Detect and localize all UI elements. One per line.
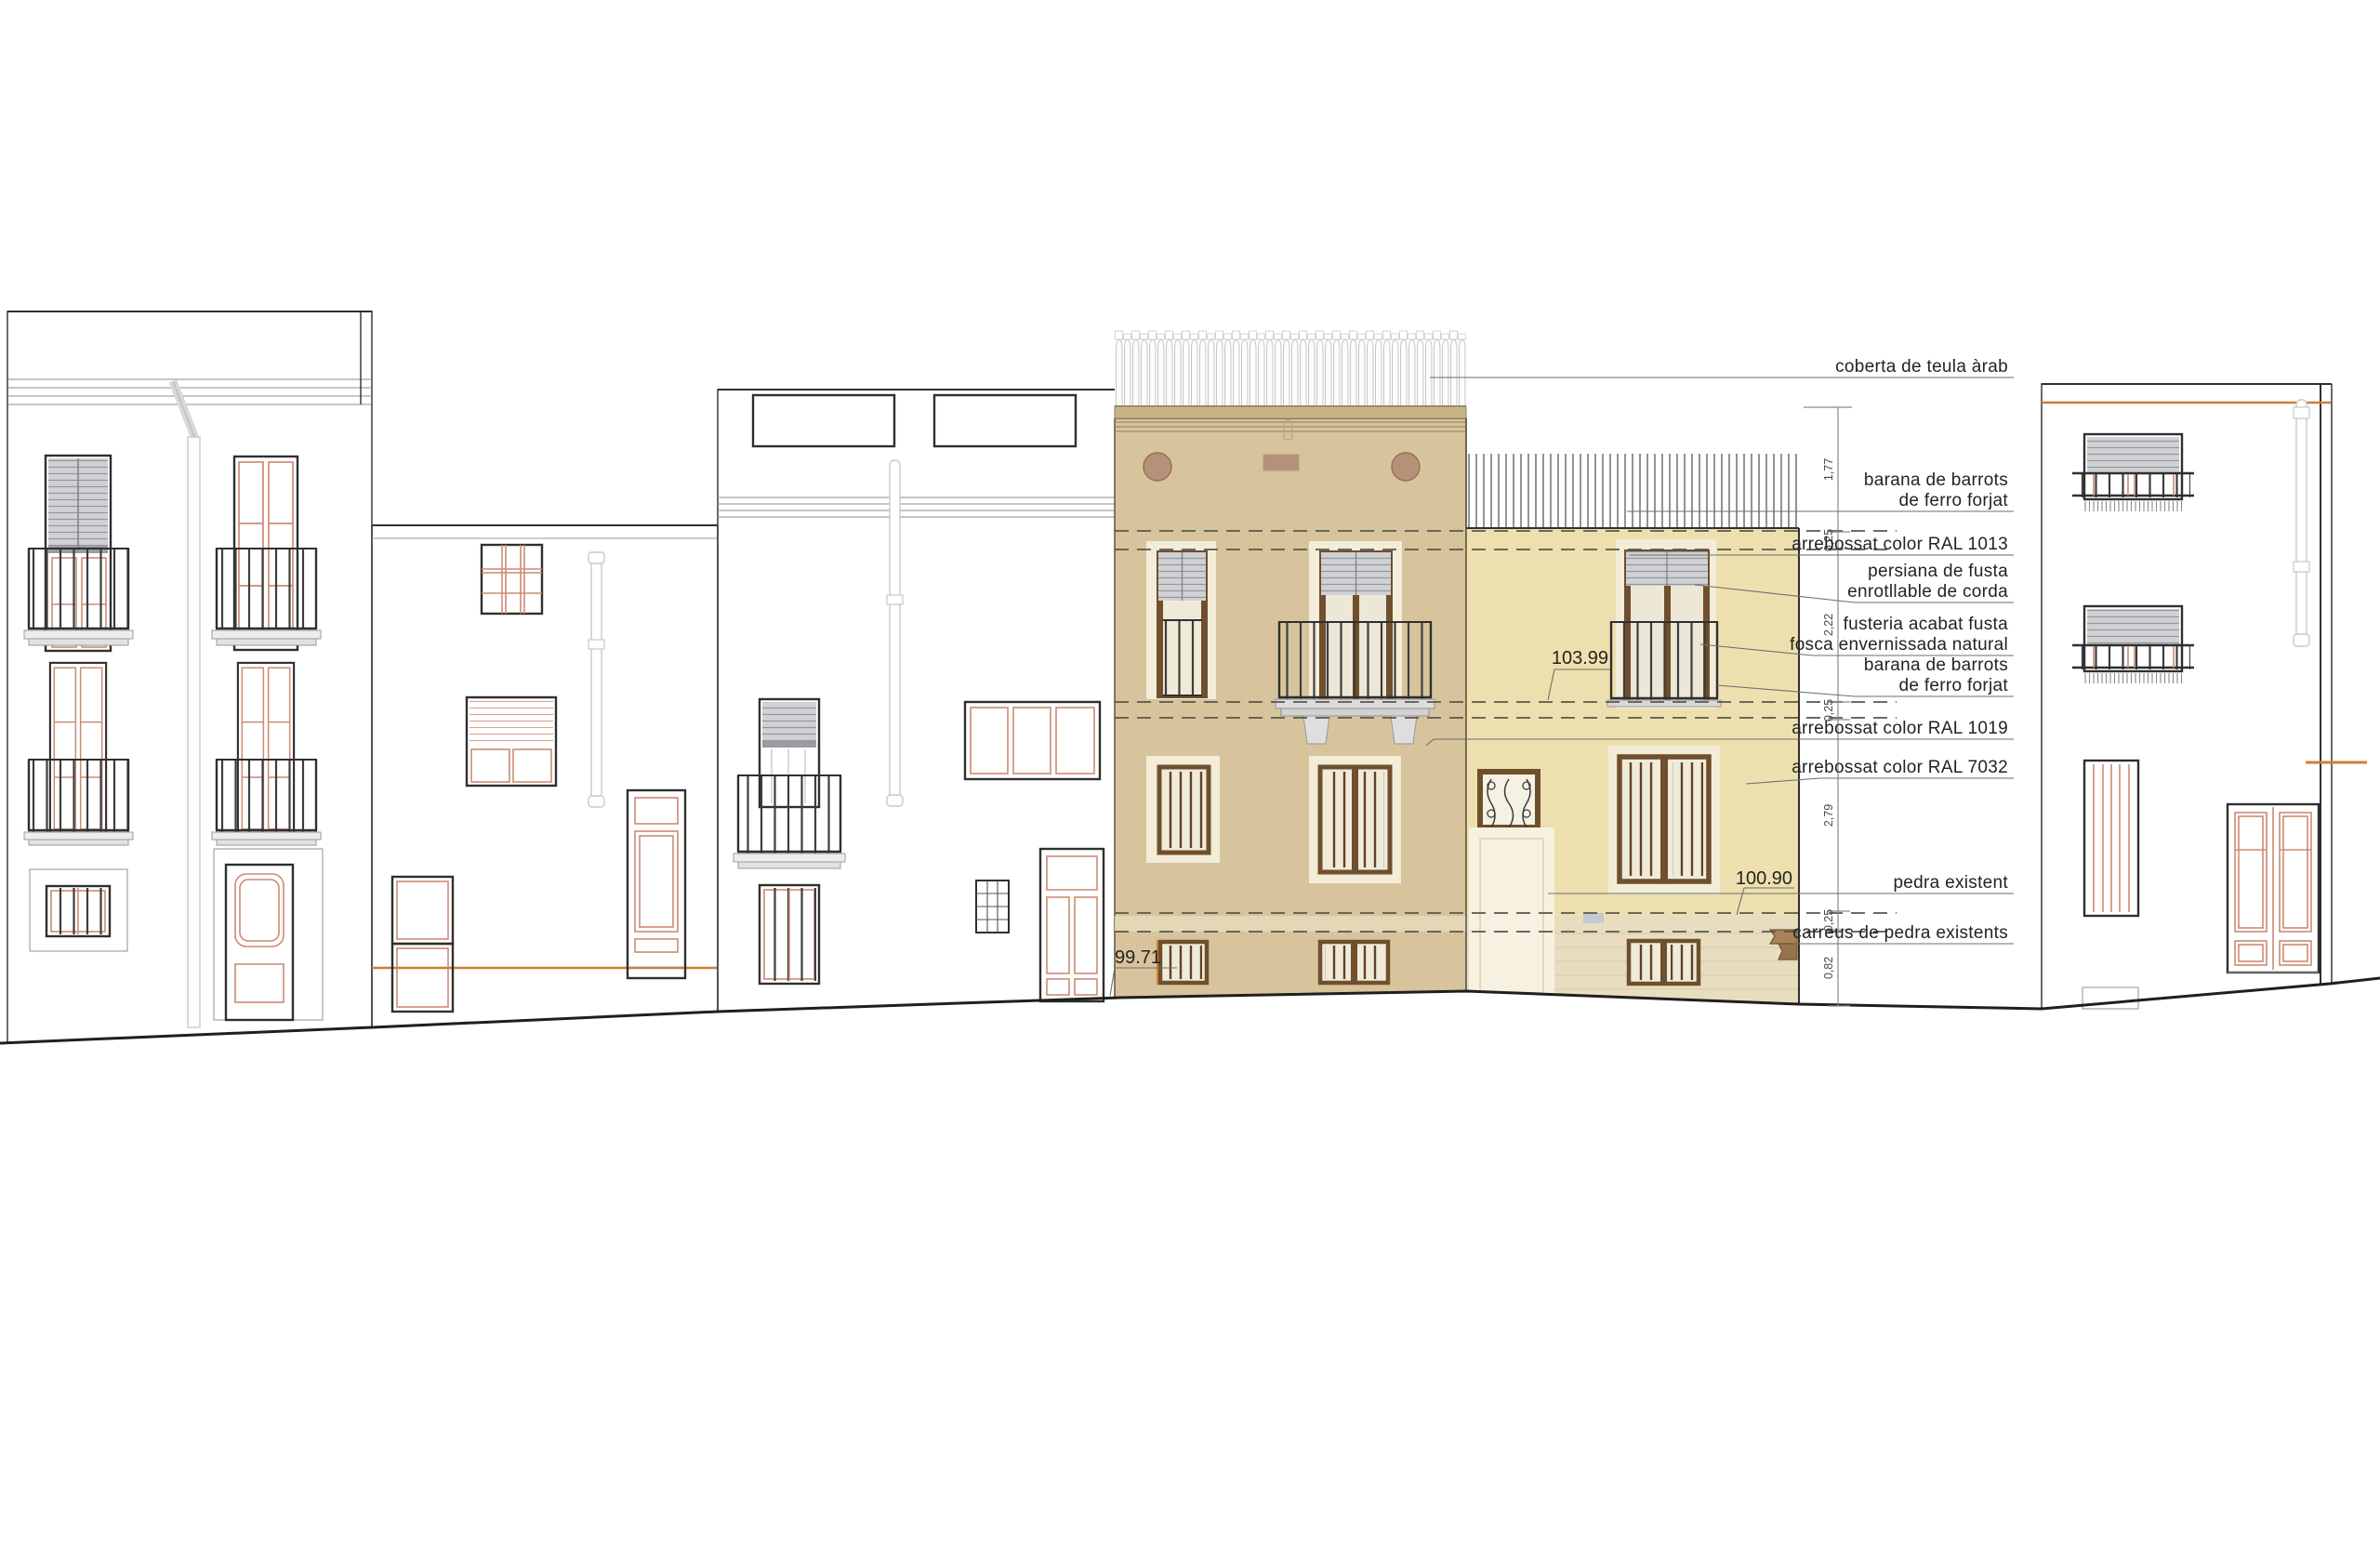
lattice-window <box>392 877 453 1012</box>
balcony-window-shutter <box>734 699 845 868</box>
balcony-railing <box>1610 622 1718 700</box>
annotation-text: carreus de pedra existents <box>1792 923 2008 943</box>
annotation-text: fosca envernissada natural <box>1790 635 2008 655</box>
grid-window <box>976 880 1009 933</box>
balcony-window-glazed <box>212 457 321 650</box>
dimension-line: 1,77 0,25 2,22 0,25 2,79 0,25 0,82 <box>1804 407 1852 1006</box>
rect-vent <box>1263 454 1300 471</box>
building-f <box>2042 384 2380 1009</box>
level-value: 100.90 <box>1736 868 1792 889</box>
annotation-text: enrotllable de corda <box>1847 582 2008 602</box>
barred-window <box>760 885 819 984</box>
balcony-window-glazed <box>212 663 321 845</box>
annotation-text: pedra existent <box>1893 873 2008 893</box>
annotation-coberta-teula: coberta de teula àrab <box>1430 357 2014 377</box>
balcony-underside-hatch <box>2084 673 2184 683</box>
annotation-text: barana de barrots <box>1864 470 2008 490</box>
balcony-slab <box>1276 699 1435 708</box>
door-surround <box>1469 827 1554 994</box>
double-door-f <box>2228 804 2319 973</box>
balcony-window-glazed <box>24 663 133 845</box>
triple-window <box>965 702 1100 779</box>
downspout-c <box>887 460 903 806</box>
dimension-value: 2,22 <box>1822 614 1835 636</box>
balcony-underside-hatch <box>2084 501 2184 511</box>
annotation-text: persiana de fusta <box>1868 562 2008 581</box>
building-a-cornice <box>7 379 372 404</box>
dimension-value: 1,77 <box>1822 458 1835 481</box>
window-d-2f-left <box>1146 541 1216 699</box>
balcony-railing <box>1278 622 1432 699</box>
window-d-gf-left <box>1157 940 1207 985</box>
street-elevation-svg: 1,77 0,25 2,22 0,25 2,79 0,25 0,82 103.9… <box>0 0 2380 1562</box>
dimension-value: 2,79 <box>1822 804 1835 827</box>
roof-terrace-railing <box>1468 454 1797 528</box>
building-c <box>718 390 1120 1012</box>
annotation-text: arrebossat color RAL 1013 <box>1792 535 2008 554</box>
annotation-text: arrebossat color RAL 1019 <box>1792 719 2008 738</box>
downspout-f <box>2294 400 2309 646</box>
balcony-railing <box>24 549 133 645</box>
building-a <box>7 311 372 1043</box>
roller-shutter <box>2087 609 2179 646</box>
window-e-balcony <box>1607 539 1721 708</box>
building-d <box>1115 330 1466 998</box>
annotation-carreus: carreus de pedra existents <box>1792 923 2014 944</box>
balcony-corbel <box>1391 716 1417 744</box>
window-d-gf-right <box>1320 940 1388 985</box>
balcony-f-lower <box>2072 606 2194 683</box>
cross-window <box>482 545 542 614</box>
annotation-text: fusteria acabat fusta <box>1844 615 2009 634</box>
level-value: 103.99 <box>1552 648 1608 668</box>
balcony-f-upper <box>2072 434 2194 511</box>
balcony-slab <box>1607 700 1721 707</box>
wrought-iron-window <box>1480 772 1538 827</box>
window-e-gf <box>1629 939 1699 986</box>
window-d-1f-right <box>1309 756 1401 883</box>
cornice-band <box>1115 406 1466 418</box>
round-vent <box>1144 453 1171 481</box>
stone-band <box>1115 916 1466 932</box>
level-value: 99.71 <box>1115 947 1161 968</box>
balcony-corbel <box>1303 716 1329 744</box>
downspout-b <box>588 552 604 807</box>
annotation-text: de ferro forjat <box>1899 676 2009 695</box>
door-b <box>628 790 685 978</box>
roller-shutter <box>2087 437 2179 474</box>
shuttered-window-f <box>2084 761 2138 916</box>
downspout-a <box>173 381 200 1027</box>
building-b <box>372 525 718 1027</box>
annotation-text: barana de barrots <box>1864 655 2008 675</box>
round-vent <box>1392 453 1420 481</box>
shutter-window <box>467 697 556 786</box>
annotation-text: arrebossat color RAL 7032 <box>1792 758 2008 777</box>
entrance-door <box>214 849 323 1020</box>
window-e-1f <box>1608 746 1720 894</box>
building-e <box>1466 418 1799 1004</box>
annotation-text: coberta de teula àrab <box>1835 357 2008 377</box>
annotation-text: de ferro forjat <box>1899 491 2009 510</box>
door-c <box>1040 849 1104 1001</box>
door-e <box>1469 827 1554 994</box>
barred-window <box>30 869 127 951</box>
dimension-value: 0,82 <box>1822 957 1835 979</box>
stone-marker <box>1583 913 1604 923</box>
elevation-drawing-canvas: 1,77 0,25 2,22 0,25 2,79 0,25 0,82 103.9… <box>0 0 2380 1562</box>
building-c-cornice <box>718 497 1120 517</box>
balconette-bars <box>1164 620 1201 695</box>
window-bars <box>1165 772 1203 848</box>
roof-balustrade <box>753 395 1076 446</box>
arab-tile-roof <box>1115 330 1466 406</box>
window-d-1f-left <box>1146 756 1220 863</box>
